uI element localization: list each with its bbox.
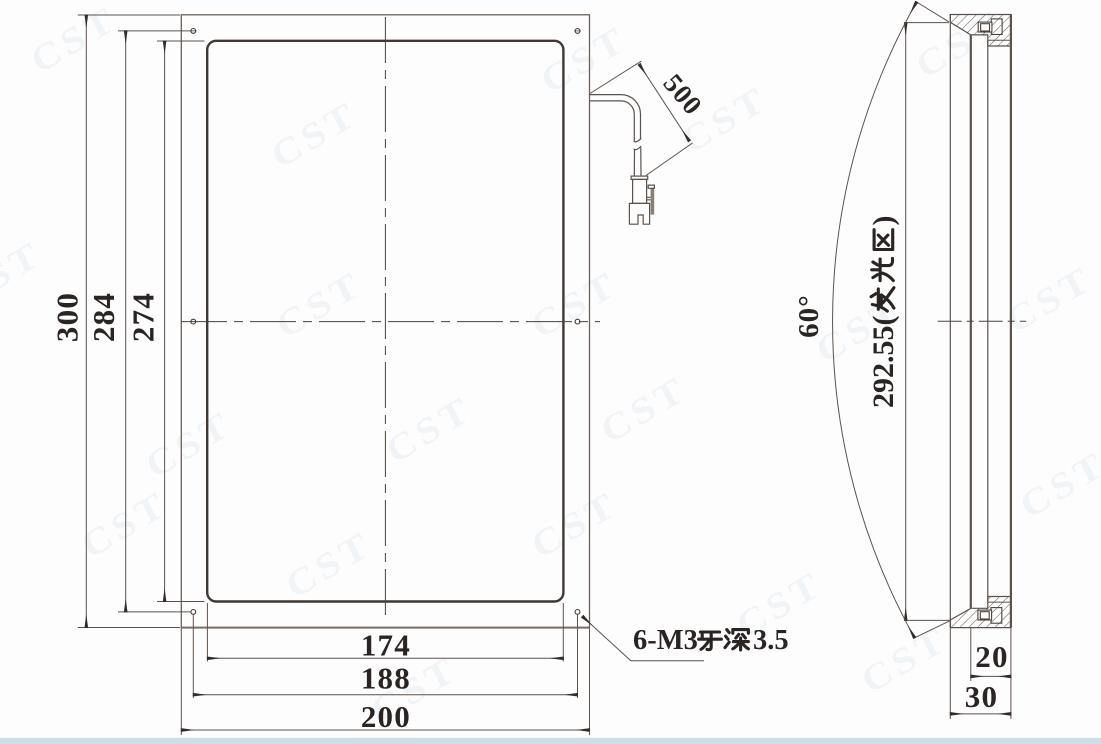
svg-text:CST: CST bbox=[265, 93, 364, 177]
svg-text:CST: CST bbox=[24, 0, 123, 82]
svg-text:CST: CST bbox=[140, 403, 239, 487]
svg-text:CST: CST bbox=[594, 368, 693, 452]
svg-text:CST: CST bbox=[280, 523, 379, 607]
svg-text:284: 284 bbox=[86, 292, 121, 342]
svg-text:60°: 60° bbox=[793, 294, 825, 338]
svg-text:CST: CST bbox=[525, 483, 624, 567]
svg-text:188: 188 bbox=[361, 661, 411, 696]
svg-text:20: 20 bbox=[975, 639, 1008, 674]
svg-text:CST: CST bbox=[0, 233, 48, 317]
svg-text:): ) bbox=[867, 216, 900, 226]
svg-text:3.5: 3.5 bbox=[753, 625, 789, 656]
svg-text:CST: CST bbox=[1014, 443, 1101, 527]
svg-text:174: 174 bbox=[361, 627, 411, 662]
svg-text:200: 200 bbox=[361, 699, 411, 734]
svg-text:292.55(: 292.55( bbox=[867, 316, 900, 409]
svg-text:CST: CST bbox=[1000, 258, 1099, 342]
svg-text:CST: CST bbox=[855, 618, 954, 702]
svg-text:CST: CST bbox=[535, 18, 634, 102]
svg-text:30: 30 bbox=[965, 679, 998, 714]
svg-text:300: 300 bbox=[49, 292, 84, 342]
svg-text:274: 274 bbox=[126, 292, 161, 342]
svg-text:CST: CST bbox=[75, 483, 174, 567]
svg-text:CST: CST bbox=[525, 263, 624, 347]
svg-text:CST: CST bbox=[270, 263, 369, 347]
svg-text:CST: CST bbox=[380, 388, 479, 472]
svg-text:6-M3: 6-M3 bbox=[633, 625, 698, 656]
